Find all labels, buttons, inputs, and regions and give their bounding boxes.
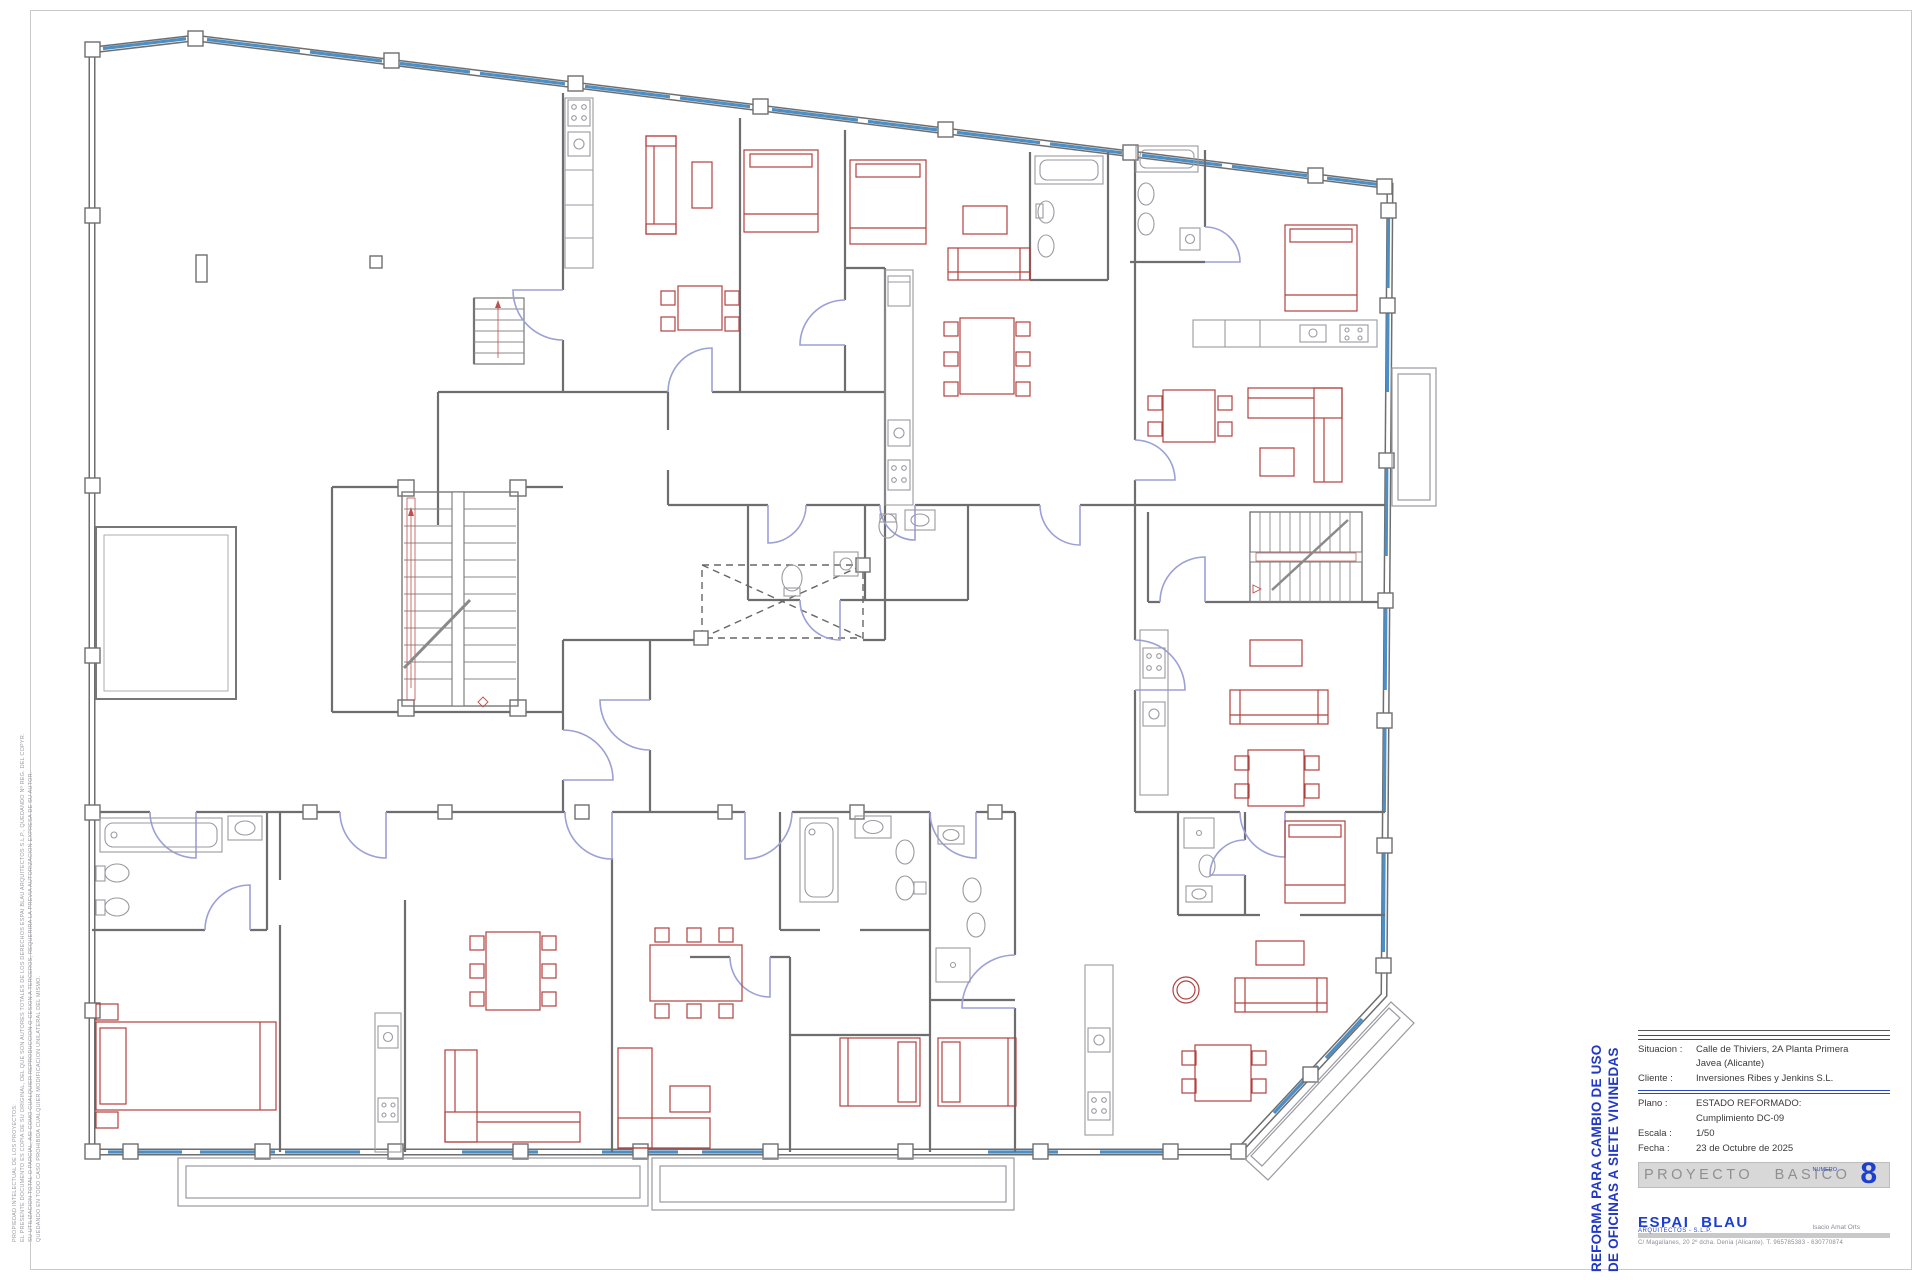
lightwell [96,527,236,699]
fecha-value: 23 de Octubre de 2025 [1696,1142,1890,1157]
field-plano: Plano : ESTADO REFORMADO: [1638,1097,1890,1112]
cliente-value: Inversiones Ribes y Jenkins S.L. [1696,1072,1890,1087]
field-fecha: Fecha : 23 de Octubre de 2025 [1638,1142,1890,1157]
firm-address: C/ Magallanes, 20 2º dcha. Denia (Alican… [1638,1240,1890,1246]
sheet-title-line2: DE OFICINAS A SIETE VIVINEDAS [1606,1032,1623,1272]
kitchen-units [375,98,1377,1152]
firm-block: ESPAI BLAU Isacio Amat Orts ARQUITECTOS … [1638,1214,1890,1246]
blue-double-rule [1638,1035,1890,1040]
plano-value: ESTADO REFORMADO: [1696,1097,1890,1112]
side-note-line: SU UTILIZACION TOTAL O PARCIAL, ASI COMO… [28,870,36,1242]
field-cliente: Cliente : Inversiones Ribes y Jenkins S.… [1638,1072,1890,1087]
sheet-title-line1: REFORMA PARA CAMBIO DE USO [1589,1032,1606,1272]
interior-walls [92,93,1385,1152]
plano-value2: Cumplimiento DC-09 [1696,1112,1890,1127]
floor-plan-drawing [0,0,1920,1280]
plano-label: Plano : [1638,1097,1696,1112]
copyright-side-note: PROPIEDAD INTELECTUAL DE LOS PROYECTOS: … [12,870,44,1242]
title-block-top-rule [1638,1030,1890,1031]
door-swings [150,227,1285,1008]
numero-label: NUMERO [1813,1167,1837,1173]
side-note-line: PROPIEDAD INTELECTUAL DE LOS PROYECTOS: [12,870,20,1242]
architect-name: Isacio Amat Orts [1812,1224,1890,1231]
fecha-label: Fecha : [1638,1142,1696,1157]
escala-value: 1/50 [1696,1127,1890,1142]
sheet-number: 8 [1860,1157,1877,1191]
sheet-title-vertical: REFORMA PARA CAMBIO DE USO DE OFICINAS A… [1589,1032,1623,1272]
blue-double-rule [1638,1090,1890,1095]
project-phase-bar: PROYECTO BASICO NUMERO 8 [1638,1162,1890,1188]
escala-label: Escala : [1638,1127,1696,1142]
cliente-label: Cliente : [1638,1072,1696,1087]
drawing-sheet: { "sheet": { "vertical_title": { "line1"… [0,0,1920,1280]
balconies [178,368,1436,1210]
situacion-value: Calle de Thiviers, 2A Planta Primera [1696,1043,1890,1058]
situacion-label: Situacion : [1638,1043,1696,1058]
title-block: Situacion : Calle de Thiviers, 2A Planta… [1638,1030,1890,1246]
situacion-value2: Javea (Alicante) [1696,1057,1890,1072]
field-escala: Escala : 1/50 [1638,1127,1890,1142]
firm-bar: ARQUITECTOS - S.L.P. [1638,1233,1890,1238]
side-note-line: QUEDANDO EN TODO CASO PROHIBIDA CUALQUIE… [36,870,44,1242]
firm-subtitle: ARQUITECTOS - S.L.P. [1638,1228,1712,1234]
bathroom-fixtures [96,146,1215,982]
staircase-right [1250,512,1362,602]
window-glazing [103,39,1389,1152]
side-note-line: EL PRESENTE DOCUMENTO ES COPIA DE SU ORI… [20,870,28,1242]
field-situacion: Situacion : Calle de Thiviers, 2A Planta… [1638,1043,1890,1058]
staircase-left [402,492,518,707]
